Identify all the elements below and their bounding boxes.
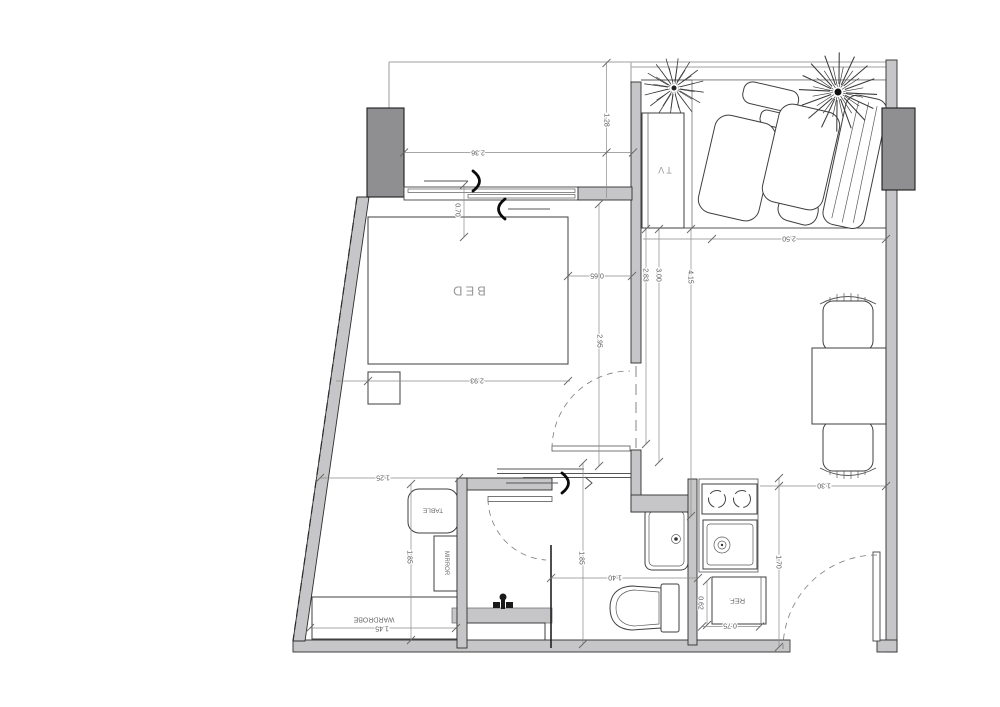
tv-label: TV (656, 165, 672, 175)
pillar (367, 108, 404, 197)
stove (702, 484, 757, 514)
bed-label: BED (450, 284, 486, 299)
kitchen-sink (703, 520, 757, 569)
toilet (610, 584, 679, 632)
dim-label: 1.45 (375, 625, 389, 632)
dim-wall-mid: 3.00 (655, 225, 664, 466)
dim-label: 3.00 (655, 268, 662, 282)
dim-label: 2.83 (642, 268, 649, 282)
wall-kitchen-west (688, 479, 697, 645)
dim-dressing-width: 1.25 (316, 474, 463, 483)
dim-entry-width: 1.30 (760, 482, 890, 491)
dim-label: 0.62 (697, 596, 704, 610)
entry-door (783, 552, 880, 652)
bathroom-door (488, 497, 552, 561)
dim-balcony-offset: 1.28 (603, 59, 611, 198)
faucet-icon (493, 594, 513, 610)
dim-label: 1.70 (775, 555, 782, 569)
dim-kitchen-side: 1.70 (775, 474, 784, 651)
nightstand (368, 372, 400, 404)
dim-wall-inner: 2.83 (642, 225, 651, 448)
fridge: REF. (712, 577, 766, 624)
dim-label: 2.50 (782, 235, 796, 242)
dim-label: 2.93 (470, 377, 484, 384)
wall-bottom (293, 640, 790, 652)
chevron-icon (585, 477, 592, 489)
wall-bath-north (457, 478, 552, 490)
dim-bath-depth: 1.85 (578, 459, 588, 648)
slide-arrow-left (499, 199, 551, 219)
sliding-window (404, 171, 632, 219)
dim-label: 0.70 (454, 203, 461, 217)
tv-cabinet: TV (642, 113, 684, 228)
dim-bedroom-depth: 2.95 (595, 200, 603, 470)
dim-fridge-depth: 0.62 (697, 577, 712, 629)
dim-label: 1.30 (817, 482, 831, 489)
dim-label: 1.28 (603, 113, 610, 127)
slide-arrow-icon (562, 473, 569, 493)
wall-bath-kitchen (631, 495, 692, 512)
wall-bottom-corner (877, 640, 897, 652)
chair (820, 293, 876, 351)
wardrobe-label: WARDROBE (353, 616, 394, 623)
chair (820, 421, 876, 479)
bed: BED (368, 217, 568, 364)
dim-label: 1.85 (578, 551, 585, 565)
dim-bath-width: 1.40 (547, 574, 702, 583)
floor-plan-svg: TV BED (0, 0, 1000, 707)
wall-slanted (293, 197, 369, 641)
shower-tray (645, 507, 688, 570)
dim-label: 4.15 (687, 270, 694, 284)
dim-balcony-width: 2.36 (400, 149, 637, 157)
dim-bed-clearance: 0.65 (564, 272, 636, 281)
dining-set (812, 293, 886, 479)
wall-dressing-divider (457, 478, 467, 648)
dim-label: 0.75 (723, 622, 737, 629)
dim-living-width: 2.50 (643, 235, 890, 244)
pillar (882, 108, 915, 190)
dim-label: 1.85 (406, 550, 413, 564)
mirror: MIRROR (434, 536, 457, 591)
wall-bedroom-east (631, 82, 641, 363)
mirror-label: MIRROR (443, 551, 449, 576)
dim-label: 2.95 (596, 334, 603, 348)
dim-label: 2.36 (471, 149, 485, 156)
wardrobe: WARDROBE (312, 597, 457, 639)
dim-label: 1.25 (376, 474, 390, 481)
table-label: TABLE (422, 507, 443, 514)
bedroom-door (552, 371, 630, 451)
dressing-table: TABLE (408, 489, 458, 533)
dining-table (812, 348, 886, 424)
dim-wall-overall: 4.15 (687, 225, 696, 520)
floor-plan-page: TV BED (0, 0, 1000, 707)
fridge-label: REF. (729, 597, 745, 606)
dim-label: 1.40 (608, 574, 622, 581)
dim-label: 0.65 (590, 272, 604, 279)
